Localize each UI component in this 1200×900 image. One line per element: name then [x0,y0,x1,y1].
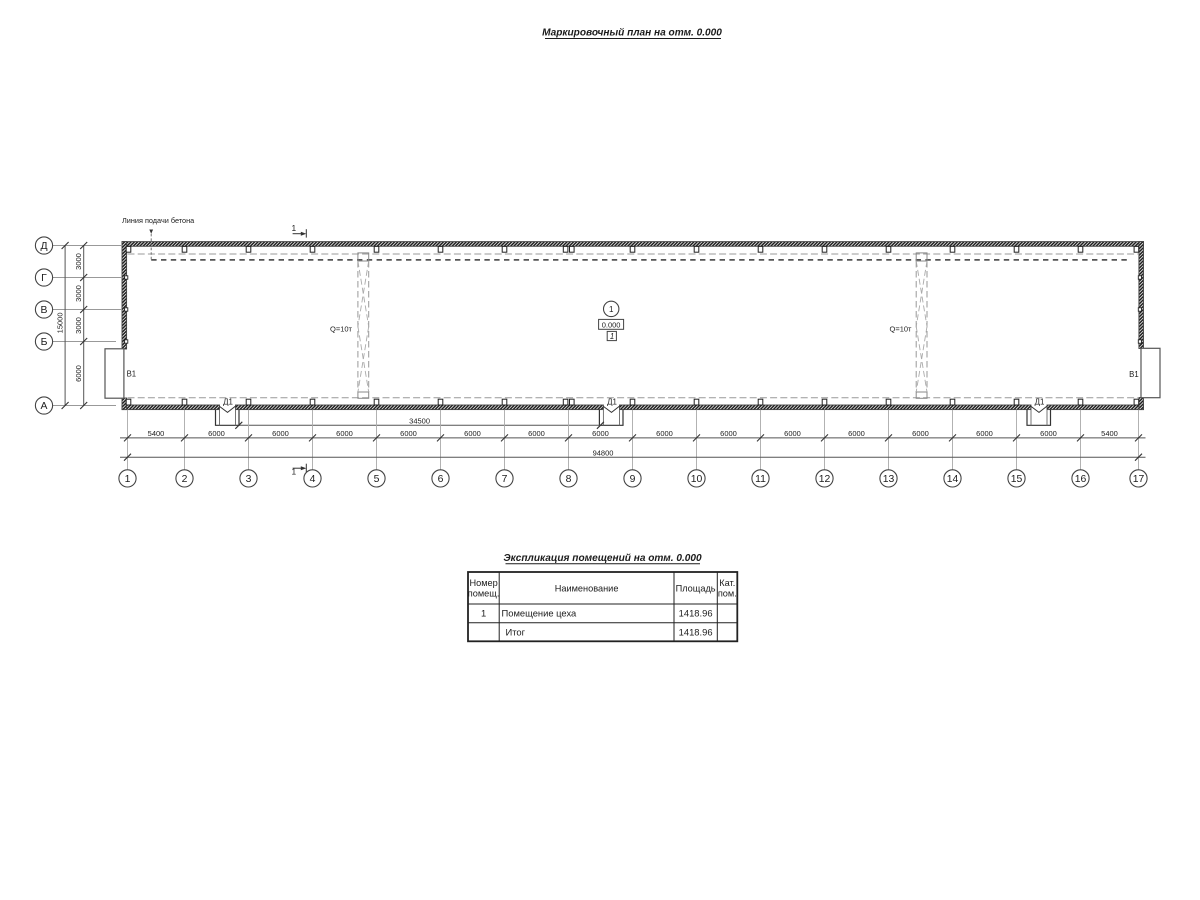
svg-text:17: 17 [1133,474,1145,485]
svg-text:6000: 6000 [656,429,673,438]
svg-text:0.000: 0.000 [602,320,621,329]
svg-text:Q=10т: Q=10т [890,324,913,333]
svg-text:Д: Д [40,241,47,252]
svg-text:4: 4 [310,474,316,485]
svg-text:1: 1 [610,332,614,341]
svg-text:6000: 6000 [528,429,545,438]
svg-text:34500: 34500 [409,416,430,425]
svg-text:1: 1 [609,305,614,314]
svg-text:Наименование: Наименование [555,584,619,594]
svg-text:Помещение цеха: Помещение цеха [502,607,578,618]
svg-text:пом.: пом. [718,589,737,599]
svg-text:5400: 5400 [148,429,165,438]
svg-text:6000: 6000 [400,429,417,438]
svg-text:Маркировочный план на отм. 0.0: Маркировочный план на отм. 0.000 [542,28,722,39]
svg-text:6000: 6000 [464,429,481,438]
svg-text:Б: Б [41,337,48,348]
svg-text:Итог: Итог [506,626,526,637]
svg-text:Г: Г [41,273,47,284]
svg-text:6000: 6000 [848,429,865,438]
svg-text:В1: В1 [1129,370,1139,379]
svg-text:Линия подачи бетона: Линия подачи бетона [122,216,195,225]
svg-text:Экспликация помещений на отм.: Экспликация помещений на отм. 0.000 [503,553,702,564]
svg-text:1: 1 [481,607,486,618]
svg-text:9: 9 [630,474,636,485]
svg-text:6000: 6000 [336,429,353,438]
svg-text:6000: 6000 [74,365,83,382]
svg-text:13: 13 [883,474,895,485]
svg-text:3000: 3000 [74,317,83,334]
svg-text:10: 10 [691,474,703,485]
svg-text:Площадь: Площадь [676,584,716,594]
svg-text:1418.96: 1418.96 [679,607,713,618]
svg-text:Q=10т: Q=10т [330,324,353,333]
svg-text:15000: 15000 [56,312,65,333]
svg-text:6000: 6000 [208,429,225,438]
svg-text:2: 2 [182,474,188,485]
svg-text:Д1: Д1 [607,398,617,407]
svg-text:6000: 6000 [784,429,801,438]
svg-text:14: 14 [947,474,959,485]
svg-text:Номер: Номер [469,578,497,588]
svg-text:В: В [41,305,48,316]
svg-text:6000: 6000 [912,429,929,438]
svg-text:В1: В1 [127,369,137,378]
svg-text:1: 1 [291,223,296,233]
svg-text:3000: 3000 [74,253,83,270]
svg-text:помещ.: помещ. [468,589,500,599]
svg-text:1: 1 [125,474,131,485]
svg-text:А: А [41,401,48,412]
svg-text:6000: 6000 [592,429,609,438]
svg-text:Д1: Д1 [223,398,233,407]
svg-text:1418.96: 1418.96 [679,626,713,637]
svg-text:5: 5 [374,474,380,485]
svg-text:6000: 6000 [272,429,289,438]
svg-text:6000: 6000 [1040,429,1057,438]
svg-text:Кат.: Кат. [719,578,735,588]
svg-text:7: 7 [502,474,508,485]
svg-text:6: 6 [438,474,444,485]
svg-text:8: 8 [566,474,572,485]
svg-text:94800: 94800 [593,449,614,458]
svg-text:3000: 3000 [74,285,83,302]
svg-text:5400: 5400 [1101,429,1118,438]
svg-text:6000: 6000 [976,429,993,438]
svg-text:15: 15 [1011,474,1023,485]
svg-text:12: 12 [819,474,831,485]
svg-text:11: 11 [755,474,766,485]
svg-text:16: 16 [1075,474,1087,485]
svg-text:3: 3 [246,474,252,485]
svg-text:6000: 6000 [720,429,737,438]
svg-text:Д1: Д1 [1035,398,1045,407]
